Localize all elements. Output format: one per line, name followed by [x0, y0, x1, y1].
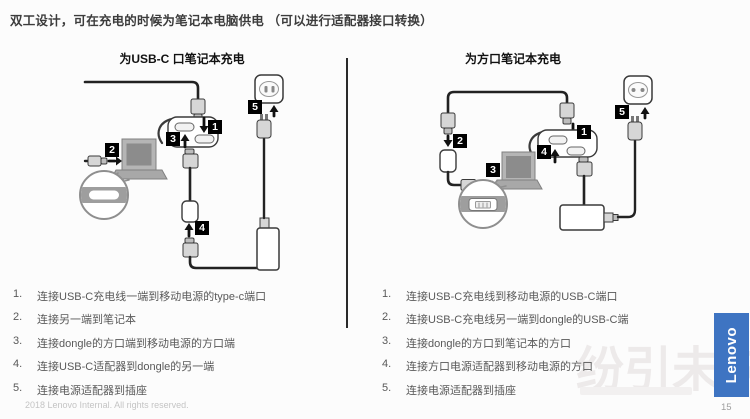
usbc-charging-diagram: 1 2 3 4 5 [85, 68, 305, 280]
step-1-badge: 1 [208, 120, 222, 134]
step-1-badge: 1 [577, 125, 591, 139]
ac-adapter-illustration [257, 218, 279, 270]
wall-outlet-icon [255, 75, 283, 103]
step-number: 5. [382, 382, 406, 394]
step-text: 连接电源适配器到插座 [37, 382, 147, 398]
step-item: 4. 连接方口电源适配器到移动电源的方口 [382, 358, 682, 381]
step-item: 1. 连接USB-C充电线一端到移动电源的type-c端口 [13, 288, 348, 311]
step-number: 3. [382, 335, 406, 347]
step-number: 5. [13, 382, 37, 394]
step-item: 5. 连接电源适配器到插座 [13, 382, 348, 405]
step-text: 连接USB-C充电线一端到移动电源的type-c端口 [37, 288, 266, 304]
step-text: 连接USB-C充电线到移动电源的USB-C端口 [406, 288, 617, 304]
usbc-connector-laptop [85, 156, 107, 166]
power-plug-icon [628, 116, 642, 140]
usbc-charging-illustration [85, 68, 305, 280]
step-text: 连接dongle的方口到笔记本的方口 [406, 335, 571, 351]
lenovo-logo-text: Lenovo [723, 327, 740, 383]
power-plug-icon [257, 114, 271, 138]
step-text: 连接dongle的方口端到移动电源的方口端 [37, 335, 235, 351]
right-panel-heading: 为方口笔记本充电 [408, 50, 618, 67]
step-number: 4. [382, 358, 406, 370]
ac-adapter-illustration [560, 205, 618, 230]
usbc-cable [448, 92, 567, 114]
step-5-badge: 5 [248, 100, 262, 114]
wall-outlet-icon [624, 76, 652, 104]
slide-title: 双工设计，可在充电的时候为笔记本电脑供电 （可以进行适配器接口转换） [10, 10, 570, 29]
step-number: 3. [13, 335, 37, 347]
step-text: 连接方口电源适配器到移动电源的方口 [406, 358, 593, 374]
insert-arrow-2 [109, 157, 122, 166]
insert-arrow-4 [185, 223, 194, 236]
step-number: 2. [382, 311, 406, 323]
step-item: 4. 连接USB-C适配器到dongle的另一端 [13, 358, 348, 381]
step-text: 连接USB-C适配器到dongle的另一端 [37, 358, 214, 374]
step-number: 4. [13, 358, 37, 370]
insert-arrow-5 [270, 105, 279, 116]
step-text: 连接另一端到笔记本 [37, 311, 136, 327]
dongle-cable [448, 172, 461, 185]
laptop-illustration [111, 139, 167, 179]
step-number: 1. [13, 288, 37, 300]
step-2-badge: 2 [105, 143, 119, 157]
square-port-charging-diagram: 1 2 3 4 5 [425, 68, 665, 280]
square-port-charging-illustration [425, 68, 665, 280]
step-5-badge: 5 [615, 105, 629, 119]
step-3-badge: 3 [166, 132, 180, 146]
ac-input-cable [618, 140, 635, 217]
usbc-cable [85, 82, 198, 100]
adapter-output-cable [190, 257, 259, 268]
lenovo-logo: Lenovo [714, 313, 749, 397]
step-3-badge: 3 [486, 163, 500, 177]
step-item: 5. 连接电源适配器到插座 [382, 382, 682, 405]
step-text: 连接电源适配器到插座 [406, 382, 516, 398]
step-item: 2. 连接另一端到笔记本 [13, 311, 348, 334]
step-4-badge: 4 [537, 145, 551, 159]
step-item: 3. 连接dongle的方口到笔记本的方口 [382, 335, 682, 358]
square-adapter-connector [577, 157, 592, 176]
step-number: 2. [13, 311, 37, 323]
step-4-badge: 4 [195, 221, 209, 235]
usbc-connector-dongle [441, 113, 455, 134]
step-item: 1. 连接USB-C充电线到移动电源的USB-C端口 [382, 288, 682, 311]
step-number: 1. [382, 288, 406, 300]
dongle-illustration [440, 150, 456, 172]
step-text: 连接USB-C充电线另一端到dongle的USB-C端 [406, 311, 628, 327]
adapter-usbc-connector [183, 238, 198, 257]
right-steps-list: 1. 连接USB-C充电线到移动电源的USB-C端口 2. 连接USB-C充电线… [382, 288, 682, 405]
left-panel-heading: 为USB-C 口笔记本充电 [72, 50, 292, 67]
step-item: 2. 连接USB-C充电线另一端到dongle的USB-C端 [382, 311, 682, 334]
left-steps-list: 1. 连接USB-C充电线一端到移动电源的type-c端口 2. 连接另一端到笔… [13, 288, 348, 405]
insert-arrow-2 [444, 136, 453, 147]
step-2-badge: 2 [453, 134, 467, 148]
dongle-square-connector [183, 149, 198, 168]
insert-arrow-5 [641, 107, 650, 118]
dongle-illustration [182, 201, 198, 222]
page-number: 15 [721, 402, 732, 413]
usbc-connector-top [560, 103, 574, 124]
step-item: 3. 连接dongle的方口端到移动电源的方口端 [13, 335, 348, 358]
square-port-magnifier [457, 180, 509, 228]
